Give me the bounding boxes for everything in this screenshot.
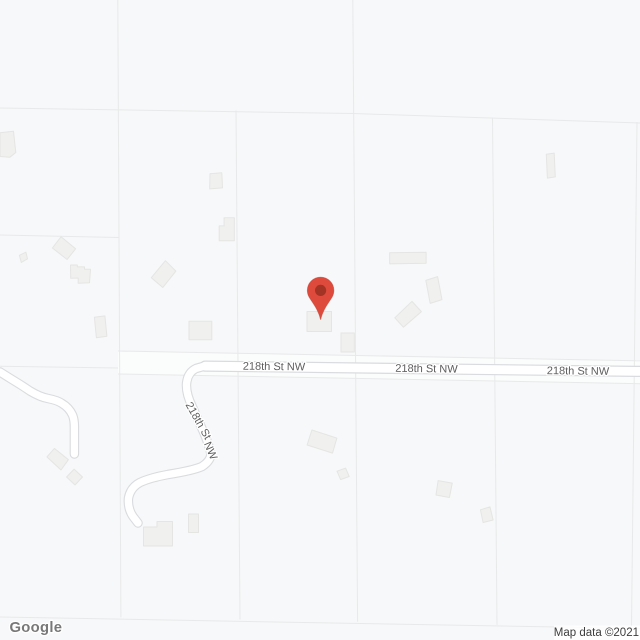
svg-text:218th St NW: 218th St NW [395, 363, 458, 376]
svg-text:Map data ©2021: Map data ©2021 [554, 627, 639, 639]
svg-text:218th St NW: 218th St NW [243, 361, 306, 374]
svg-text:Google: Google [10, 620, 63, 636]
svg-text:218th St NW: 218th St NW [547, 365, 610, 378]
